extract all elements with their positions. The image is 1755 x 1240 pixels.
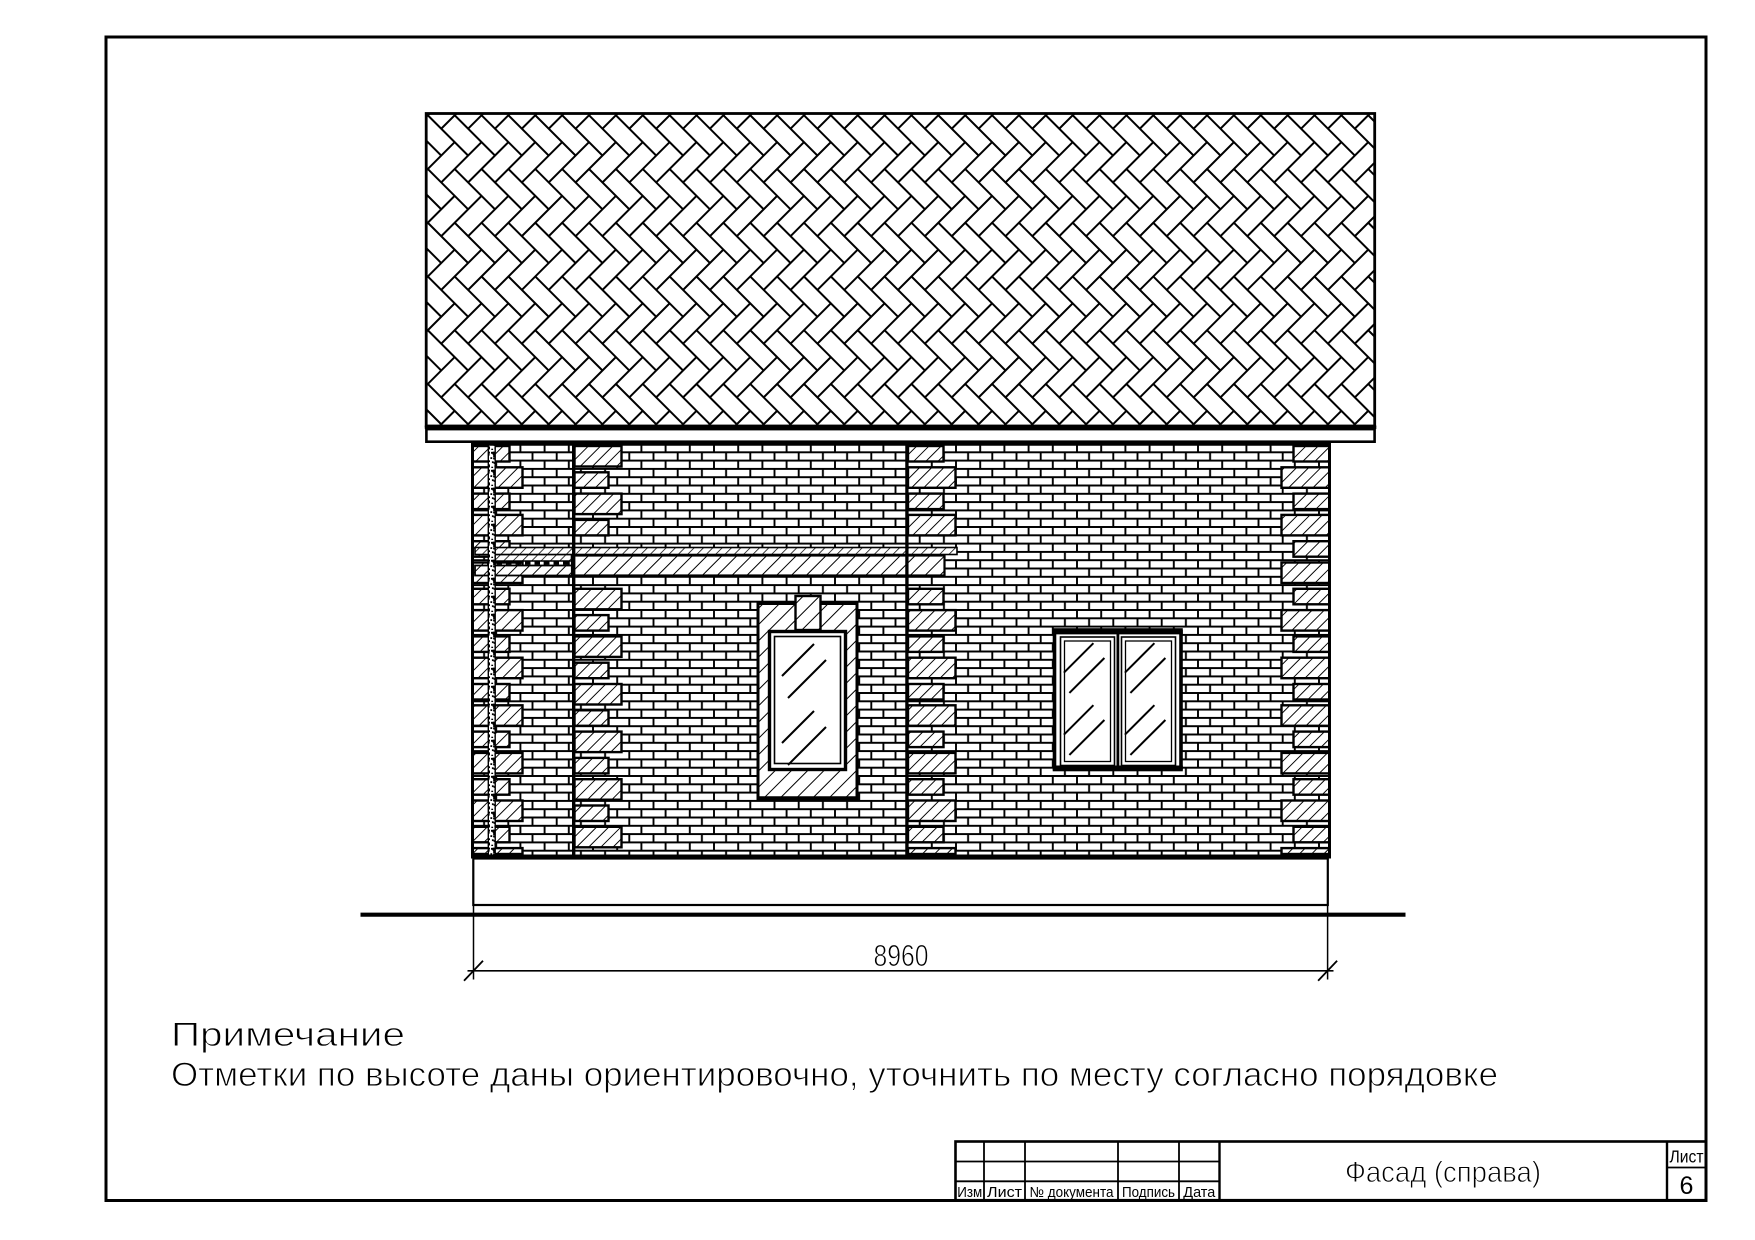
svg-text:Изм: Изм xyxy=(957,1185,982,1201)
svg-text:Примечание: Примечание xyxy=(171,1016,405,1054)
svg-text:6: 6 xyxy=(1680,1172,1694,1200)
svg-text:Дата: Дата xyxy=(1183,1185,1216,1201)
svg-text:Фасад (справа): Фасад (справа) xyxy=(1345,1156,1541,1189)
svg-text:Лист: Лист xyxy=(1670,1147,1704,1167)
svg-text:№ документа: № документа xyxy=(1030,1185,1115,1201)
svg-text:Лист: Лист xyxy=(987,1185,1022,1201)
svg-text:Подпись: Подпись xyxy=(1122,1185,1175,1201)
svg-text:8960: 8960 xyxy=(874,938,929,973)
svg-text:Отметки по высоте даны ориенти: Отметки по высоте даны ориентировочно, у… xyxy=(171,1056,1498,1094)
